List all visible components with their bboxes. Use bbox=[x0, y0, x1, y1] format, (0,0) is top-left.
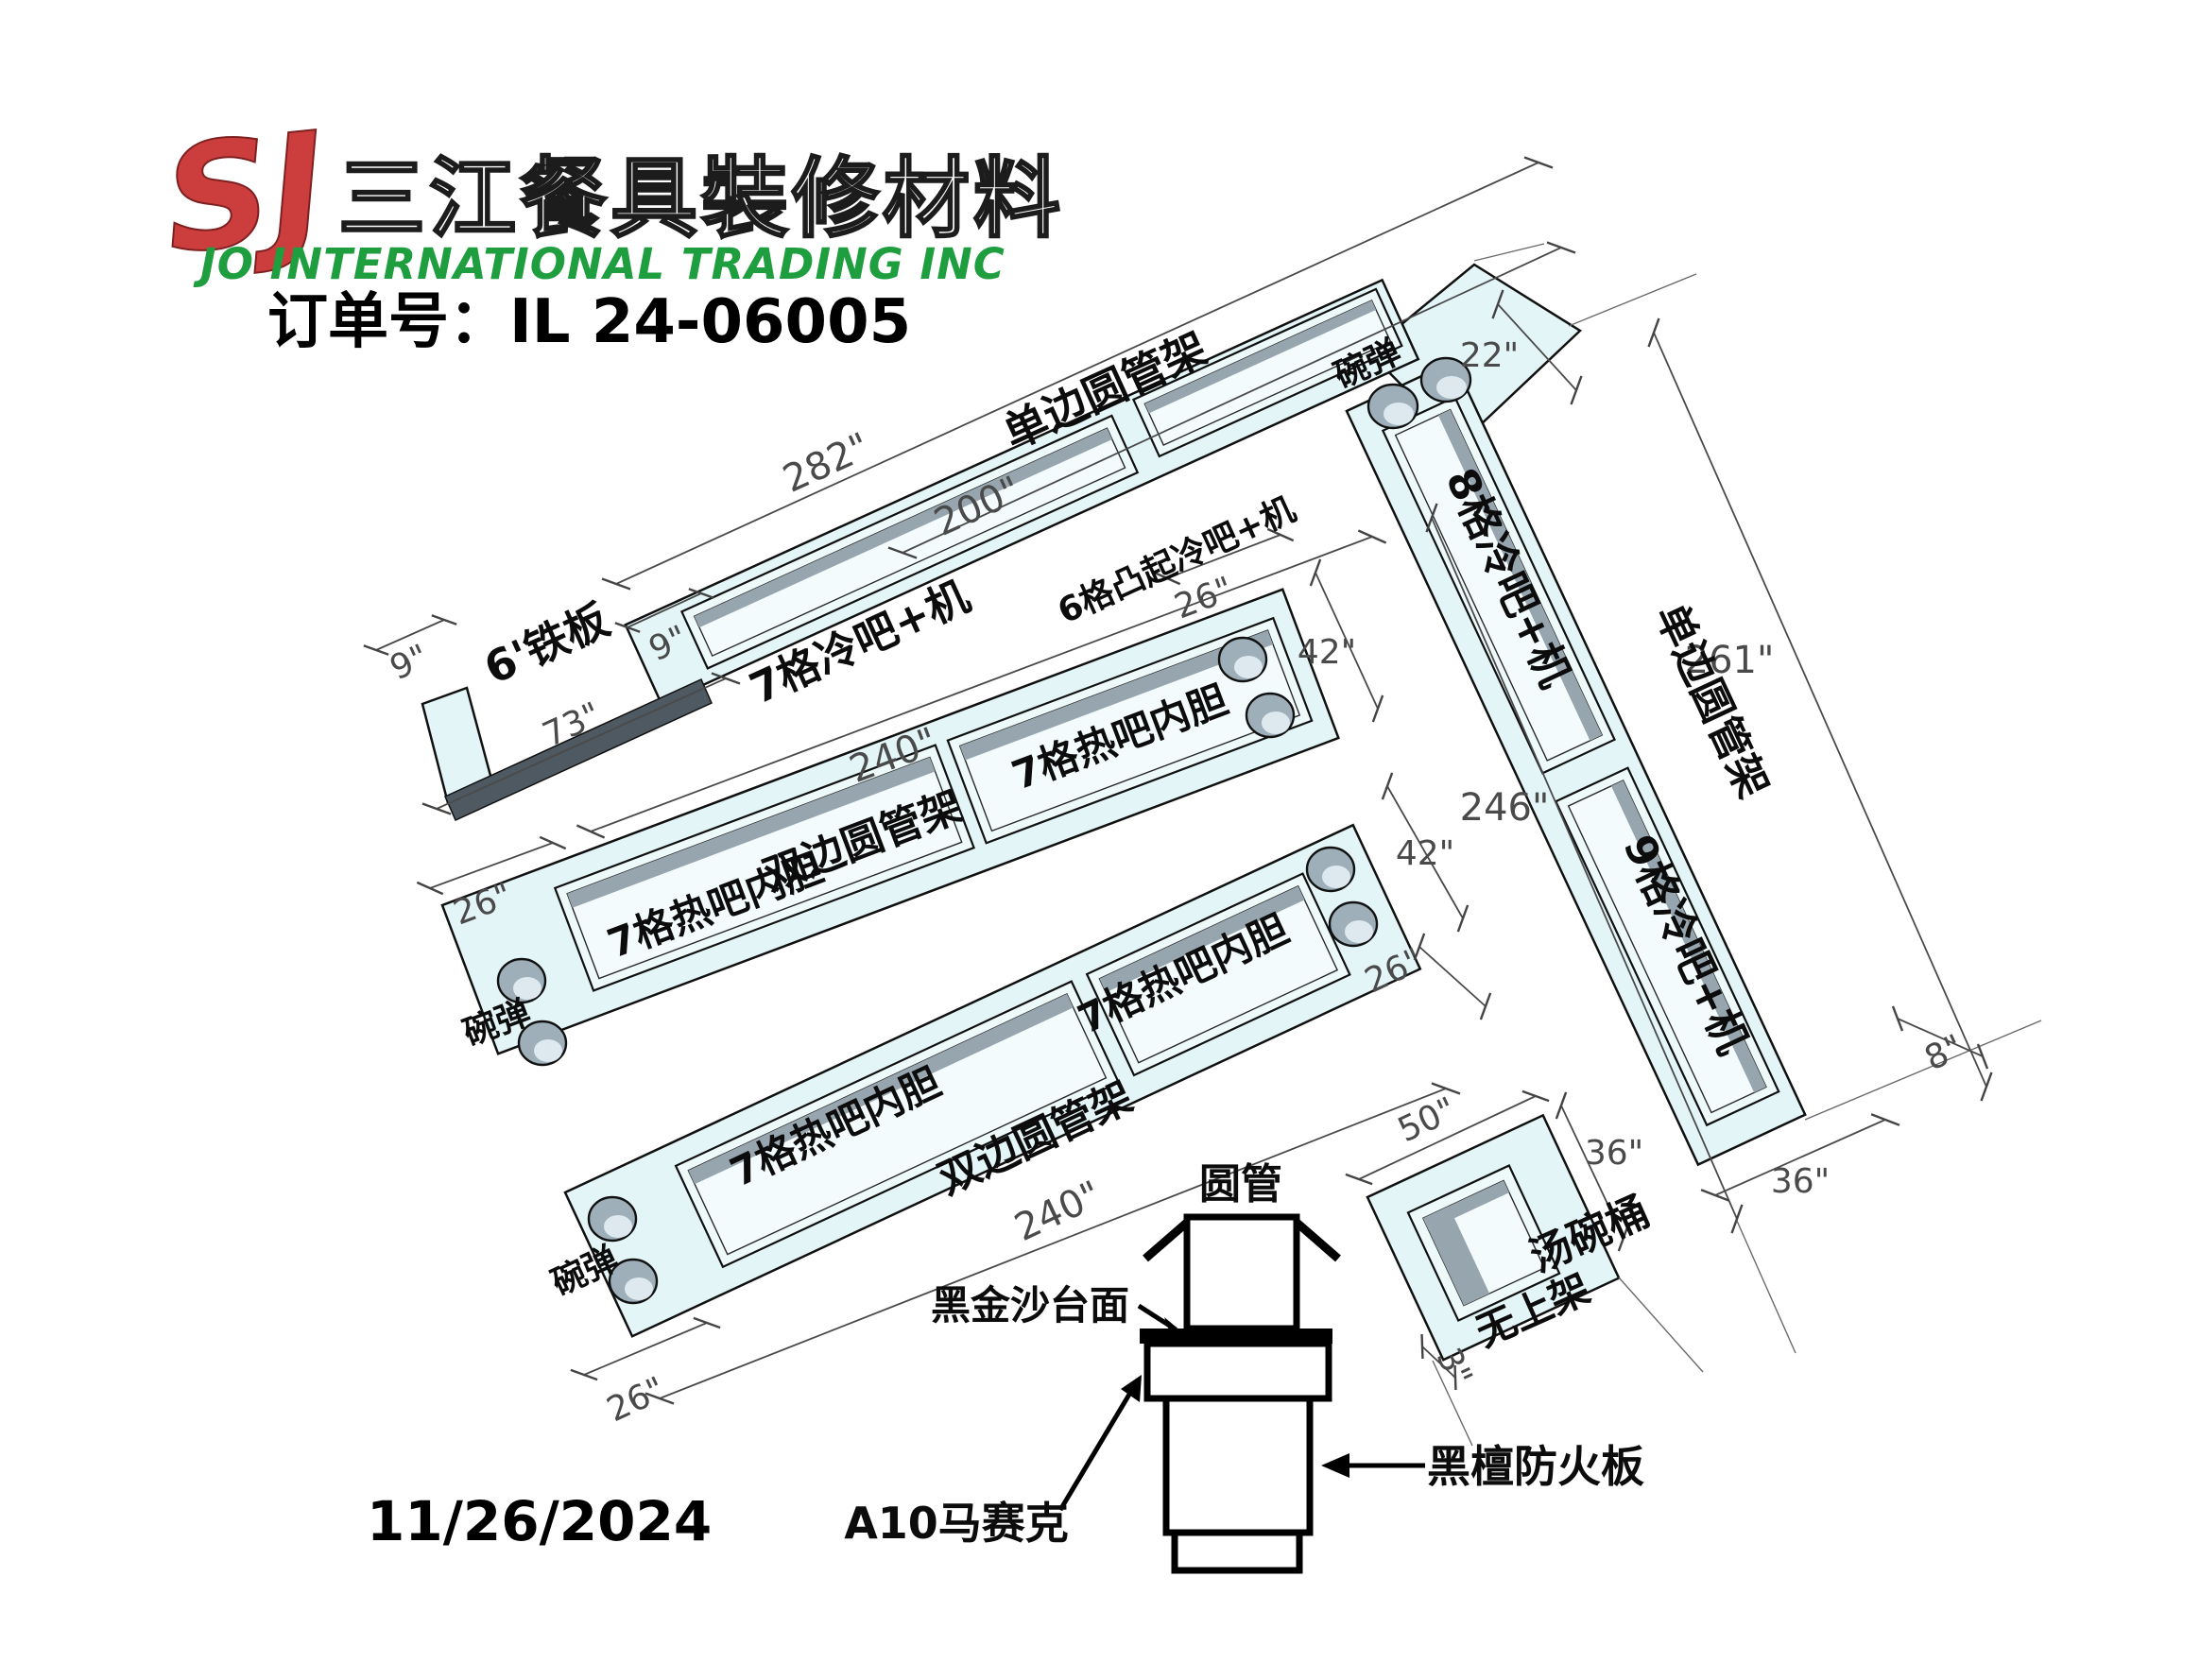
cabinet-base bbox=[1175, 1533, 1299, 1570]
company-name-cn: 三江餐具裝修材料 bbox=[338, 148, 1064, 249]
label-countertop: 黑金沙台面 bbox=[931, 1282, 1129, 1329]
dim-22: 22" bbox=[1460, 336, 1519, 375]
dim-9-plate: 9" bbox=[385, 638, 435, 689]
dim-42-d: 42" bbox=[1396, 834, 1454, 873]
dim-26-d-left: 26" bbox=[601, 1370, 671, 1431]
label-fireboard: 黑檀防火板 bbox=[1427, 1441, 1644, 1492]
label-rack-single-right: 单边圆管架 bbox=[1646, 596, 1778, 805]
order-number: 订单号：IL 24-06005 bbox=[267, 287, 911, 357]
company-logo: SJ 三江餐具裝修材料 JO INTERNATIONAL TRADING INC bbox=[157, 100, 1064, 289]
dim-36-end: 36" bbox=[1771, 1162, 1830, 1201]
dim-240-d: 240" bbox=[1008, 1173, 1108, 1250]
round-tube-section bbox=[1187, 1217, 1297, 1329]
company-name-en: JO INTERNATIONAL TRADING INC bbox=[193, 239, 1005, 289]
cross-section-detail bbox=[1060, 1217, 1425, 1570]
label-iron-plate: 6'铁板 bbox=[476, 593, 616, 694]
label-round-tube: 圆管 bbox=[1199, 1160, 1282, 1209]
order-drawing-page: SJ 三江餐具裝修材料 JO INTERNATIONAL TRADING INC… bbox=[0, 0, 2200, 1680]
dim-36-box: 36" bbox=[1585, 1134, 1643, 1173]
dim-42-c: 42" bbox=[1298, 633, 1356, 672]
dim-246: 246" bbox=[1460, 786, 1550, 830]
label-mosaic: A10马赛克 bbox=[844, 1498, 1069, 1549]
dim-282: 282" bbox=[777, 425, 876, 502]
date-label: 11/26/2024 bbox=[367, 1489, 712, 1553]
dim-3: 3" bbox=[1429, 1343, 1480, 1393]
cabinet-body bbox=[1166, 1398, 1310, 1533]
dim-8: 8" bbox=[1919, 1028, 1969, 1079]
dim-50: 50" bbox=[1392, 1090, 1462, 1151]
mosaic-band bbox=[1147, 1344, 1329, 1398]
drawing-canvas: SJ 三江餐具裝修材料 JO INTERNATIONAL TRADING INC… bbox=[0, 0, 2200, 1680]
